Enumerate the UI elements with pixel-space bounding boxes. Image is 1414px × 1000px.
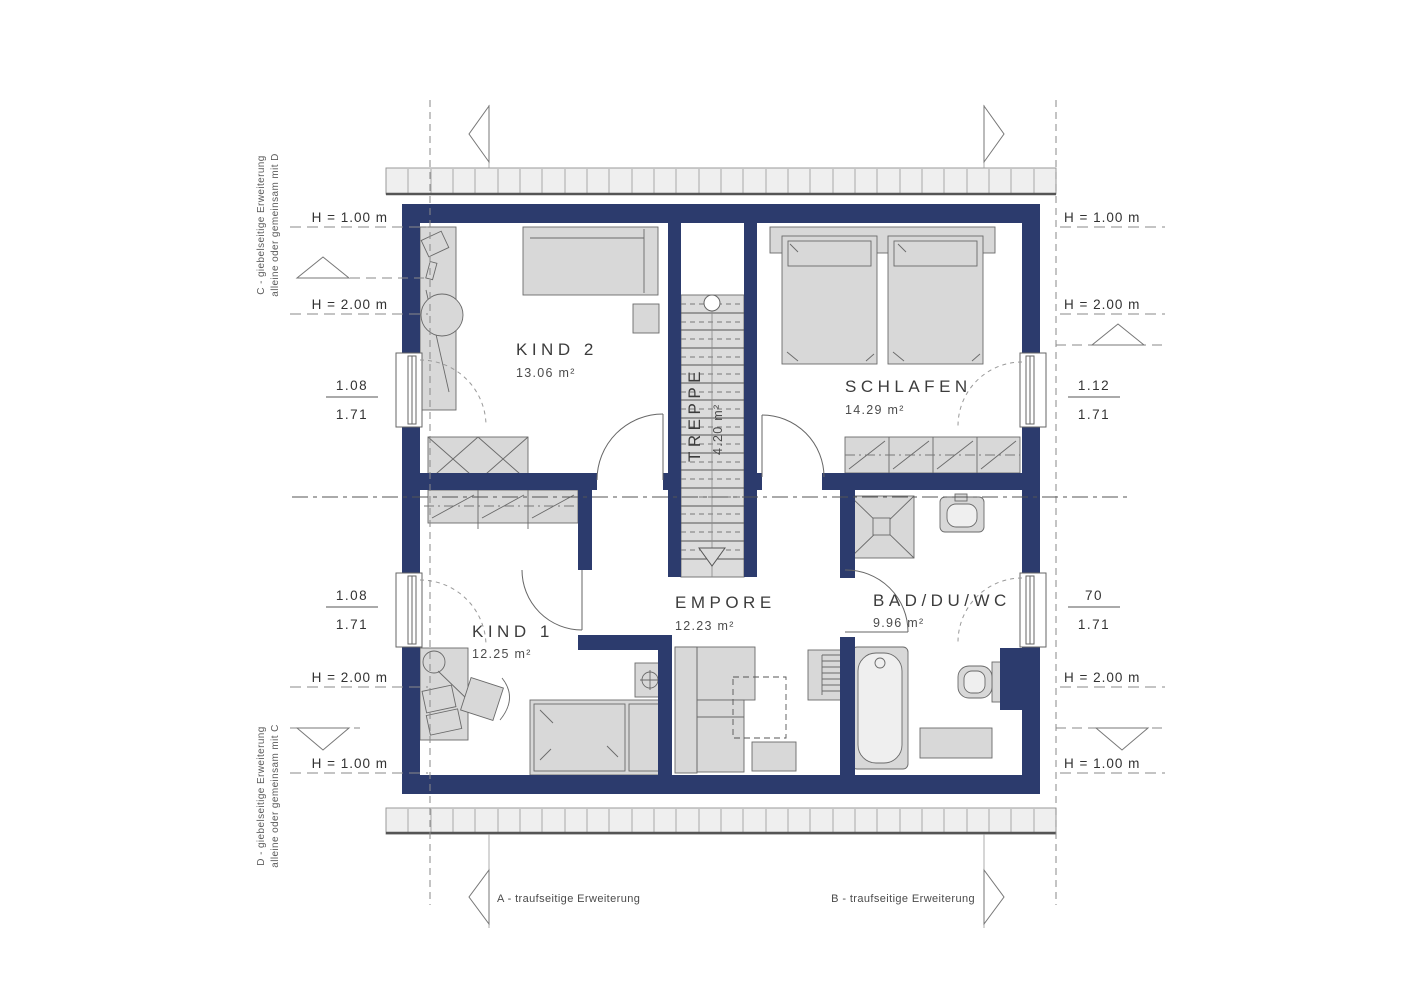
sofa-seat bbox=[697, 700, 744, 772]
railing bbox=[808, 650, 844, 700]
furniture-empore bbox=[675, 647, 844, 773]
svg-text:1.08: 1.08 bbox=[336, 588, 368, 603]
furniture-kind1 bbox=[420, 648, 665, 775]
bath-cabinet bbox=[920, 728, 992, 758]
note-b: B - traufseitige Erweiterung bbox=[831, 893, 975, 905]
furniture-hall-closet bbox=[424, 490, 582, 529]
svg-text:1.71: 1.71 bbox=[336, 407, 368, 422]
wall-bad-west-lower bbox=[840, 637, 855, 775]
wall-kind2-south bbox=[402, 473, 597, 490]
svg-text:1.71: 1.71 bbox=[1078, 407, 1110, 422]
h200-right-bottom: H = 2.00 m bbox=[1064, 670, 1140, 685]
wall-stair-right bbox=[744, 223, 757, 473]
note-c-line1: C - giebelseitige Erweiterung bbox=[256, 155, 267, 294]
label-treppe: TREPPE bbox=[685, 367, 704, 462]
wall-exterior-right bbox=[1022, 204, 1040, 355]
dim-right-bottom: 70 1.71 bbox=[1068, 588, 1120, 632]
floor-plan-page: KIND 2 13.06 m² SCHLAFEN 14.29 m² TREPPE… bbox=[0, 0, 1414, 1000]
wall-bad-west-upper bbox=[840, 490, 855, 578]
mattress-kind1 bbox=[534, 704, 625, 771]
door-schlafen bbox=[762, 415, 824, 477]
note-c-line2: alleine oder gemeinsam mit D bbox=[270, 153, 281, 296]
sofa-back bbox=[675, 647, 697, 773]
note-d-line2: alleine oder gemeinsam mit C bbox=[270, 724, 281, 867]
h100-right-bottom: H = 1.00 m bbox=[1064, 756, 1140, 771]
label-schlafen: SCHLAFEN bbox=[845, 377, 972, 396]
window-left-bottom bbox=[396, 573, 422, 647]
wall-exterior-top bbox=[402, 204, 1040, 223]
window-left-top bbox=[396, 353, 422, 427]
area-kind1: 12.25 m² bbox=[472, 647, 532, 661]
note-a: A - traufseitige Erweiterung bbox=[497, 893, 640, 905]
slope-triangle-right-down bbox=[1096, 728, 1148, 750]
stair-start-marker bbox=[704, 295, 720, 311]
area-kind2: 13.06 m² bbox=[516, 366, 576, 380]
h200-left-bottom: H = 2.00 m bbox=[312, 670, 388, 685]
flag-bottom-b bbox=[984, 870, 1004, 924]
svg-text:1.12: 1.12 bbox=[1078, 378, 1110, 393]
door-kind1 bbox=[522, 570, 582, 630]
flag-top-right bbox=[984, 106, 1004, 162]
label-kind1: KIND 1 bbox=[472, 622, 554, 641]
wall-exterior-bottom bbox=[402, 775, 1040, 794]
pillow-left bbox=[788, 241, 871, 266]
chair-kind2 bbox=[421, 294, 463, 336]
h100-left-bottom: H = 1.00 m bbox=[312, 756, 388, 771]
label-kind2: KIND 2 bbox=[516, 340, 598, 359]
bed-kind2 bbox=[523, 227, 658, 295]
window-right-top bbox=[1020, 353, 1046, 427]
wall-kind1-east bbox=[578, 490, 592, 570]
area-treppe: 4.20 m² bbox=[711, 404, 725, 455]
shower-drain bbox=[873, 518, 890, 535]
nightstand-kind2 bbox=[633, 304, 659, 333]
window-right-bottom bbox=[1020, 573, 1046, 647]
wall-stair-left bbox=[668, 223, 681, 577]
wall-pier-bad bbox=[1000, 648, 1022, 710]
slope-triangle-left-down bbox=[297, 728, 349, 750]
wall-empore-west bbox=[658, 650, 672, 775]
wall-schlafen-south bbox=[822, 473, 1040, 490]
note-d-line1: D - giebelseitige Erweiterung bbox=[256, 726, 267, 865]
door-kind2 bbox=[597, 414, 663, 480]
area-empore: 12.23 m² bbox=[675, 619, 735, 633]
svg-text:1.08: 1.08 bbox=[336, 378, 368, 393]
dim-right-top: 1.12 1.71 bbox=[1068, 378, 1120, 422]
roof-strip-top bbox=[386, 168, 1056, 194]
area-bad: 9.96 m² bbox=[873, 616, 924, 630]
h200-right-top: H = 2.00 m bbox=[1064, 297, 1140, 312]
pillow-kind1 bbox=[629, 704, 659, 771]
svg-text:70: 70 bbox=[1085, 588, 1103, 603]
flag-top-left bbox=[469, 106, 489, 162]
area-schlafen: 14.29 m² bbox=[845, 403, 905, 417]
label-bad: BAD/DU/WC bbox=[873, 591, 1011, 610]
dim-left-bottom: 1.08 1.71 bbox=[326, 588, 378, 632]
h100-left-top: H = 1.00 m bbox=[312, 210, 388, 225]
h200-left-top: H = 2.00 m bbox=[312, 297, 388, 312]
h100-right-top: H = 1.00 m bbox=[1064, 210, 1140, 225]
dim-left-top: 1.08 1.71 bbox=[326, 378, 378, 422]
svg-text:1.71: 1.71 bbox=[1078, 617, 1110, 632]
slope-triangle-right-up bbox=[1092, 324, 1144, 345]
label-empore: EMPORE bbox=[675, 593, 776, 612]
wall-kind1-jog bbox=[578, 635, 672, 650]
side-table bbox=[752, 742, 796, 771]
slope-triangle-left-up bbox=[297, 257, 349, 278]
furniture-schlafen bbox=[770, 227, 1020, 473]
flag-bottom-a bbox=[469, 870, 489, 924]
svg-text:1.71: 1.71 bbox=[336, 617, 368, 632]
roof-strip-bottom bbox=[386, 808, 1056, 834]
floor-plan-drawing: KIND 2 13.06 m² SCHLAFEN 14.29 m² TREPPE… bbox=[0, 0, 1414, 1000]
pillow-right bbox=[894, 241, 977, 266]
